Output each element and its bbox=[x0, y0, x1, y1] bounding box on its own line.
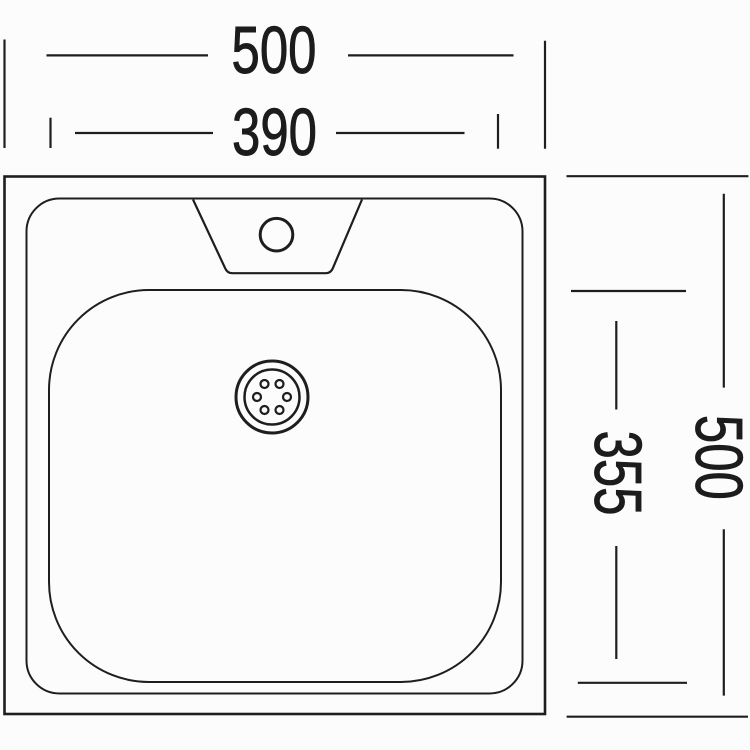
svg-text:500: 500 bbox=[681, 415, 750, 500]
svg-text:500: 500 bbox=[232, 12, 317, 87]
svg-text:355: 355 bbox=[580, 431, 655, 516]
svg-text:390: 390 bbox=[232, 94, 317, 169]
